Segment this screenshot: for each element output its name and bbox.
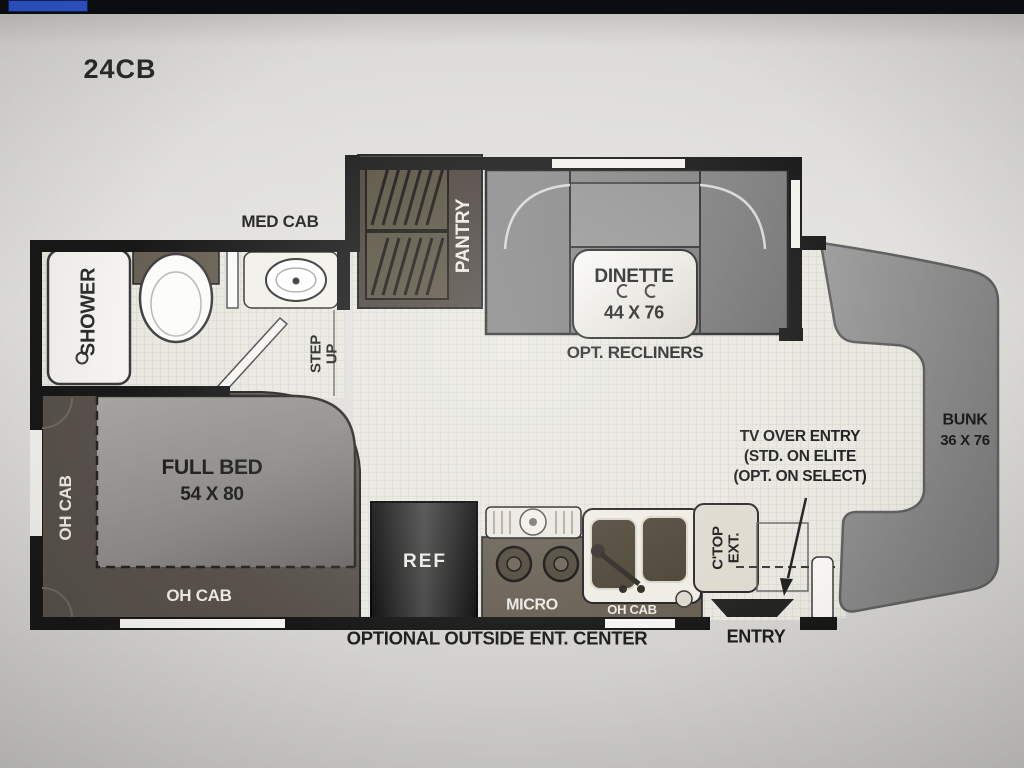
micro-label: MICRO [506,598,558,615]
oh-cab-kitchen-label: OH CAB [607,603,656,617]
bunk-size-label: 36 X 76 [940,433,990,449]
entry-label: ENTRY [727,628,786,647]
tv-note-label: TV OVER ENTRY (STD. ON ELITE (OPT. ON SE… [734,427,867,487]
full-bed [97,396,355,567]
opt-recliners-label: OPT. RECLINERS [567,344,704,362]
entry-door [812,557,833,621]
bunk-label: BUNK [942,413,987,430]
dinette-size-label: 44 X 76 [604,304,664,323]
sink-bowl [642,517,687,582]
dinette-table [573,250,697,338]
bath-divider-wall [227,250,238,308]
dinette-label: DINETTE [594,267,673,287]
med-cab-label: MED CAB [241,213,318,231]
outside-ent-center-label: OPTIONAL OUTSIDE ENT. CENTER [347,628,648,647]
pantry-label: PANTRY [454,199,474,273]
ref-label: REF [403,552,447,572]
shower-label: SHOWER [79,268,100,356]
floorplan-screenshot: 24CB MED CAB SHOWER STEP UP PANTRY DINET… [0,0,1024,768]
floorplan-drawing [0,0,1024,768]
oh-cab-side-label: OH CAB [57,475,75,540]
step-up-label: STEP UP [308,335,340,373]
full-bed-label: FULL BED [161,457,262,479]
model-label: 24CB [83,55,156,83]
ctop-ext-label: C'TOP EXT. [710,526,742,569]
oh-cab-foot-label: OH CAB [166,587,231,605]
full-bed-size-label: 54 X 80 [180,485,243,505]
